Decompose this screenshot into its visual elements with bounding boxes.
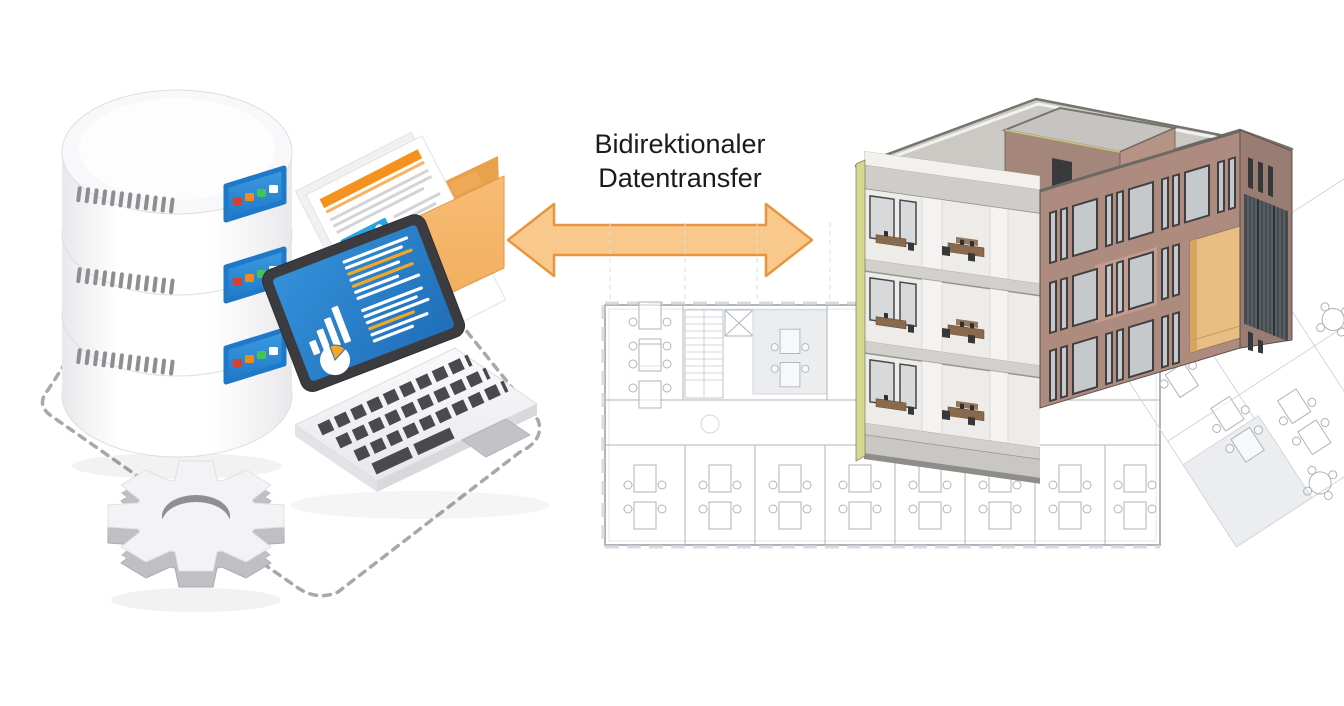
building-cutaway-interior [864,151,1040,484]
database-system-illustration [0,0,560,706]
bim-building-model [560,0,1344,706]
building-right-face [1240,130,1292,377]
glass-curtain-wall [1244,194,1288,342]
plan-grid-lines [610,222,830,303]
diagram-canvas: Bidirektionaler Datentransfer [0,0,1344,706]
stairwell [685,310,723,398]
database-stack-icon [62,90,292,457]
elevator [725,310,753,336]
gear-icon [108,461,284,587]
entrance-niche [1190,226,1240,353]
section-cut-edge [856,160,865,461]
